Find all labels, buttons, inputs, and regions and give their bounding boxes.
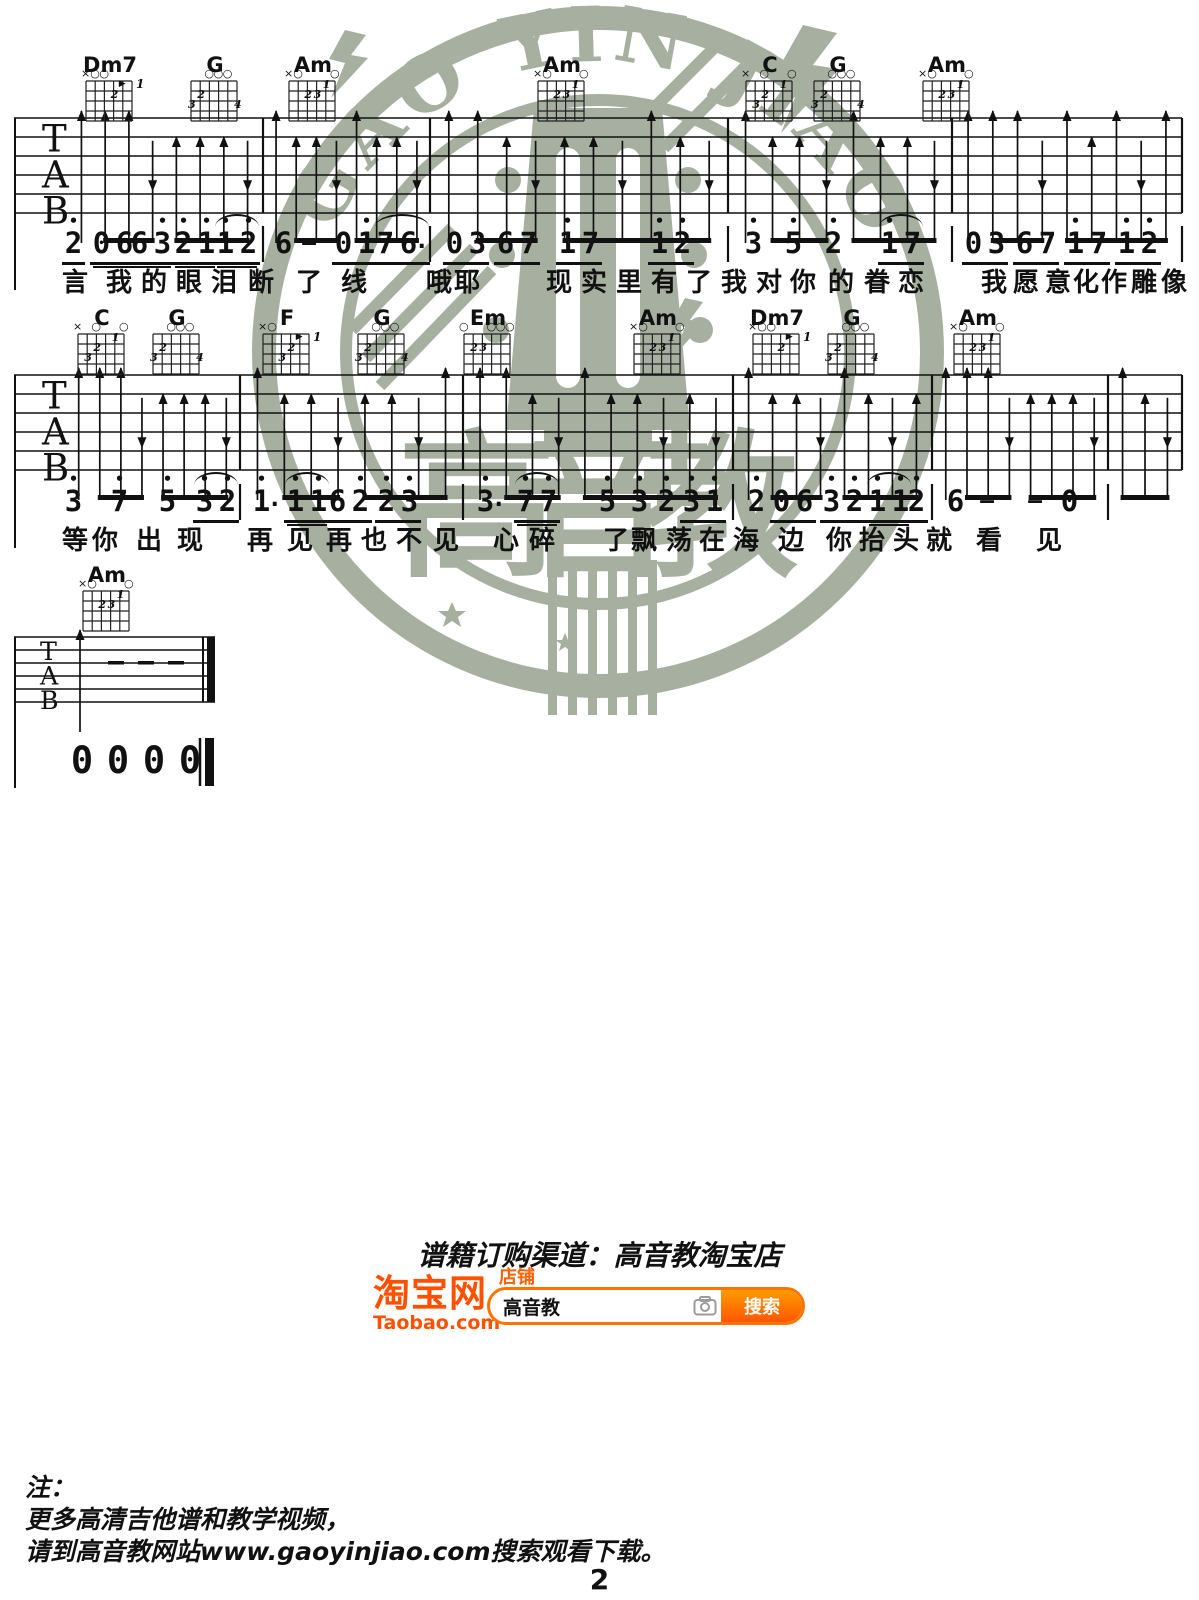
strum-arrowhead	[473, 110, 482, 121]
strum-arrowhead	[352, 110, 361, 121]
tab-letter: B	[40, 685, 59, 715]
strum-arrowhead	[476, 367, 485, 378]
strum-arrowhead	[74, 367, 83, 378]
beam	[161, 495, 228, 500]
beam	[103, 238, 154, 243]
strum-arrowhead	[253, 367, 262, 378]
beam	[563, 238, 712, 243]
strum-arrowhead	[414, 437, 423, 448]
beam	[355, 238, 419, 243]
strum-arrowhead	[1163, 437, 1172, 448]
beam	[771, 238, 829, 243]
rest-dash	[138, 661, 154, 665]
strum-arrowhead	[984, 367, 993, 378]
beam	[1121, 495, 1170, 500]
strum-arrowhead	[76, 629, 85, 640]
strum-arrowhead	[222, 437, 231, 448]
strum-arrowhead	[1161, 110, 1170, 121]
beam	[1029, 495, 1097, 500]
strum-arrowhead	[502, 367, 511, 378]
strum-arrowhead	[137, 437, 146, 448]
final-thick-bar	[205, 738, 214, 786]
strum-arrowhead	[744, 367, 753, 378]
strum-arrowhead	[334, 437, 343, 448]
strum-arrowhead	[988, 110, 997, 121]
music-notation-layer: TABTABTAB	[0, 0, 1199, 1600]
rest-dash	[168, 661, 184, 665]
beam	[98, 495, 144, 500]
strum-arrowhead	[531, 180, 540, 191]
rest-dash	[108, 661, 124, 665]
strum-arrowhead	[816, 437, 825, 448]
strum-arrowhead	[332, 180, 341, 191]
strum-arrowhead	[243, 180, 252, 191]
beam	[476, 238, 538, 243]
strum-arrowhead	[272, 110, 281, 121]
strum-arrowhead	[964, 110, 973, 121]
beam	[991, 238, 1044, 243]
strum-arrowhead	[116, 367, 125, 378]
tab-letter: B	[42, 446, 69, 489]
strum-arrowhead	[1137, 180, 1146, 191]
strum-arrowhead	[888, 437, 897, 448]
beam	[363, 495, 448, 500]
strum-arrowhead	[1118, 367, 1127, 378]
strum-arrowhead	[840, 367, 849, 378]
beam	[771, 495, 823, 500]
strum-arrowhead	[849, 110, 858, 121]
strum-arrowhead	[647, 110, 656, 121]
beam	[851, 238, 936, 243]
beam	[583, 495, 718, 500]
strum-arrowhead	[1063, 110, 1072, 121]
strum-arrowhead	[711, 437, 720, 448]
strum-arrowhead	[659, 437, 668, 448]
beam	[282, 495, 340, 500]
beam	[174, 238, 249, 243]
strum-arrowhead	[822, 180, 831, 191]
strum-arrowhead	[705, 180, 714, 191]
strum-arrowhead	[95, 367, 104, 378]
strum-arrowhead	[580, 367, 589, 378]
strum-arrowhead	[618, 180, 627, 191]
guitar-tab-sheet-page: GAO YIN JIAO 高音教 TABTABTAB	[0, 0, 1199, 1600]
strum-arrowhead	[1112, 110, 1121, 121]
beam	[294, 238, 338, 243]
strum-arrowhead	[741, 110, 750, 121]
strum-arrowhead	[930, 180, 939, 191]
beam	[842, 495, 918, 500]
strum-arrowhead	[1013, 110, 1022, 121]
tab-letter: B	[42, 189, 69, 232]
strum-arrowhead	[962, 367, 971, 378]
strum-arrowhead	[441, 367, 450, 378]
strum-arrowhead	[1038, 180, 1047, 191]
strum-arrowhead	[77, 110, 86, 121]
strum-arrowhead	[941, 367, 950, 378]
strum-arrowhead	[444, 110, 453, 121]
strum-arrowhead	[101, 110, 110, 121]
strum-arrowhead	[148, 180, 157, 191]
final-thick-bar	[207, 637, 215, 702]
beam	[1065, 238, 1168, 243]
beam	[965, 495, 1011, 500]
strum-arrowhead	[1005, 437, 1014, 448]
beam	[504, 495, 560, 500]
strum-arrowhead	[124, 110, 133, 121]
strum-arrowhead	[1090, 437, 1099, 448]
strum-arrowhead	[554, 437, 563, 448]
strum-arrowhead	[412, 180, 421, 191]
